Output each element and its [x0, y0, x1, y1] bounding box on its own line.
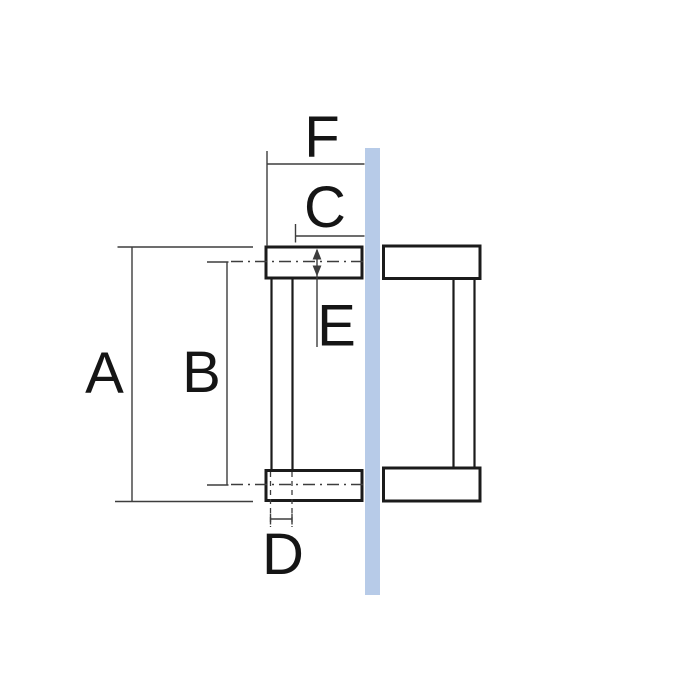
dim-label-b: B [182, 340, 221, 405]
dim-label-d: D [262, 522, 304, 587]
front-handle-tube [272, 277, 293, 471]
back-handle [384, 246, 481, 501]
handle-dimension-diagram: F C E A B D [0, 0, 700, 700]
glass-panel [365, 148, 380, 595]
dim-label-e: E [317, 294, 356, 359]
front-handle [266, 247, 362, 501]
dim-label-a: A [85, 341, 124, 406]
back-handle-top-mount [384, 246, 481, 279]
front-handle-top-mount [266, 247, 362, 278]
back-handle-bottom-mount [384, 468, 481, 501]
dimension-labels: F C E A B D [85, 105, 356, 587]
front-handle-bottom-mount [266, 471, 362, 501]
dim-label-c: C [304, 175, 346, 240]
dim-label-f: F [304, 105, 339, 170]
diagram-canvas: F C E A B D [0, 0, 700, 700]
back-handle-tube [454, 277, 475, 469]
